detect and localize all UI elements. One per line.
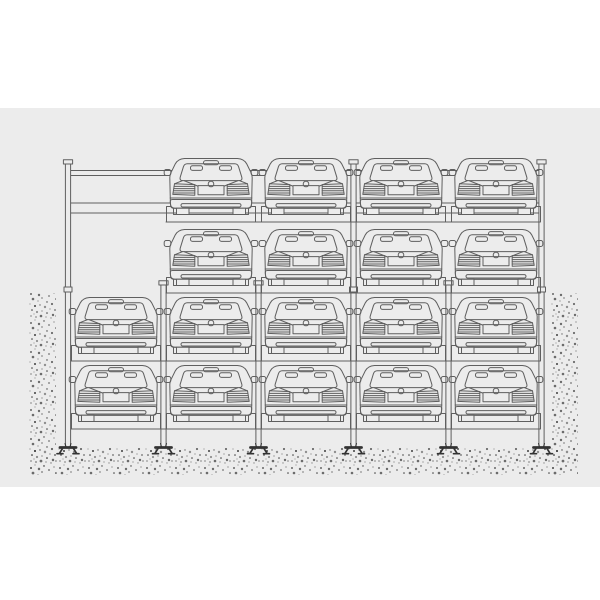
level-4-top-car-bay-4 [354,159,448,215]
parking-elevation-drawing [0,0,600,600]
support-column-4 [351,164,356,447]
level-2-pit-upper-car-bay-4 [354,298,448,354]
level-4-top-car-bay-3 [259,159,353,215]
column-cap-4 [349,160,358,164]
ground-right-wall [551,293,578,475]
level-1-pit-lower-car-bay-5 [449,366,543,422]
drawing-content [0,108,600,487]
column-cap-6 [537,160,546,164]
support-column-2 [161,285,166,447]
column-splice-6 [538,287,546,292]
support-column-1 [65,164,70,447]
ground-pit-floor [28,448,578,475]
level-2-pit-upper-car-bay-1 [69,298,163,354]
column-cap-1 [63,160,72,164]
ground-left-wall [28,293,56,475]
parking-system-elevation [0,0,600,600]
support-column-3 [256,285,261,447]
level-3-car-bay-2 [164,230,258,286]
level-2-pit-upper-car-bay-2 [164,298,258,354]
level-1-pit-lower-car-bay-2 [164,366,258,422]
level-3-car-bay-3 [259,230,353,286]
column-splice-1 [64,287,72,292]
support-column-5 [446,285,451,447]
level-1-pit-lower-car-bay-3 [259,366,353,422]
level-4-top-car-bay-5 [449,159,543,215]
level-1-pit-lower-car-bay-4 [354,366,448,422]
level-2-pit-upper-car-bay-3 [259,298,353,354]
level-3-car-bay-5 [449,230,543,286]
level-2-pit-upper-car-bay-5 [449,298,543,354]
level-1-pit-lower-car-bay-1 [69,366,163,422]
level-4-top-car-bay-2 [164,159,258,215]
level-3-car-bay-4 [354,230,448,286]
